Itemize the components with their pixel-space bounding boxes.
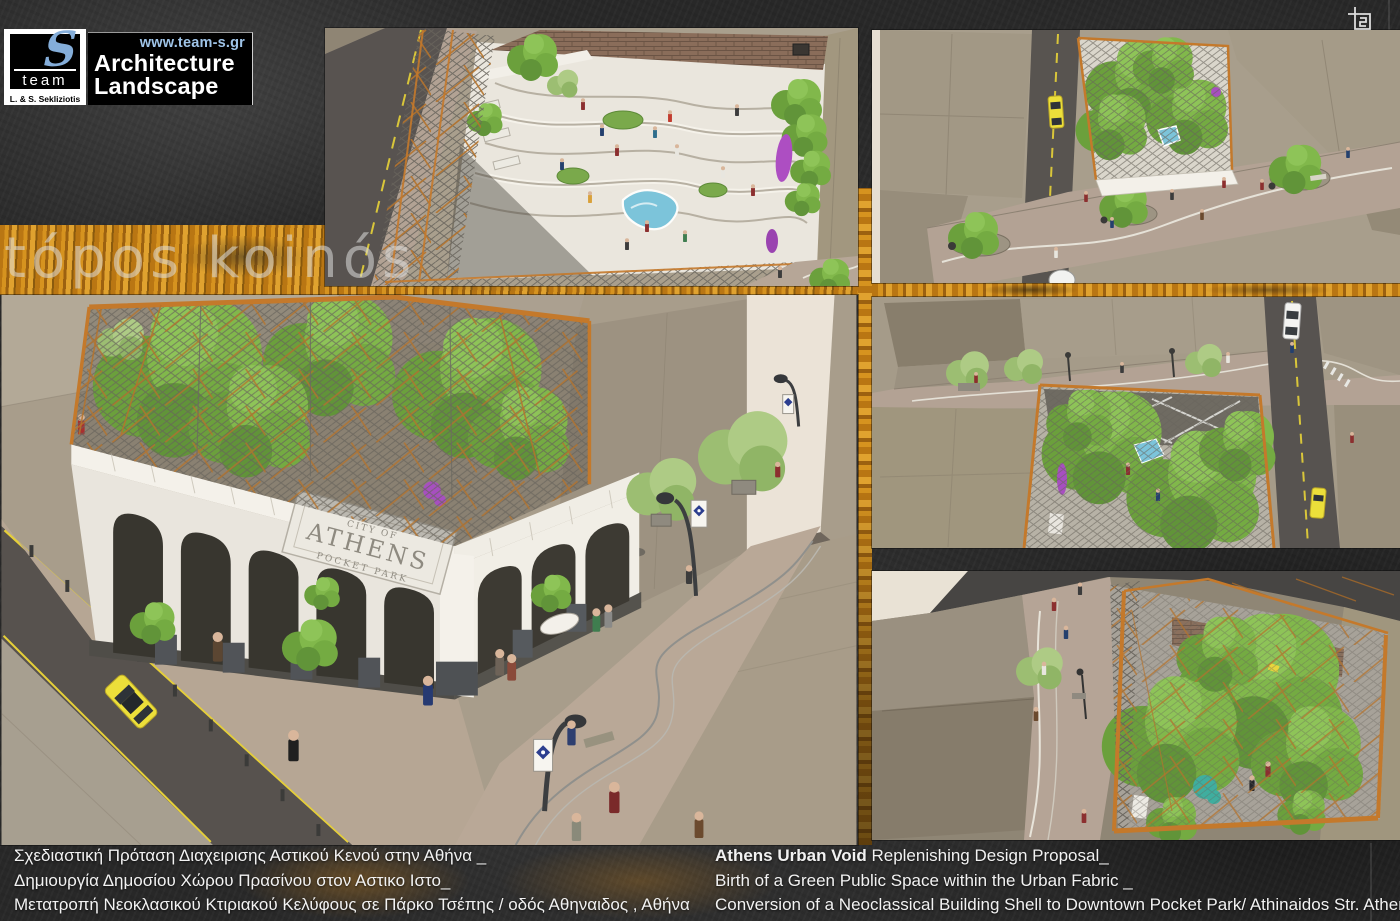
render-aerial-corner-panel bbox=[872, 297, 1400, 548]
caption-greek-line2: Δημιουργία Δημοσίου Χώρου Πρασίνου στον … bbox=[14, 869, 690, 894]
background-seam bbox=[1388, 0, 1390, 30]
logo-brand: team bbox=[14, 69, 76, 89]
render-birdseye-box-panel bbox=[872, 571, 1400, 840]
logo-discipline-2: Landscape bbox=[88, 75, 252, 98]
logo-mark-black-box: S team bbox=[10, 34, 80, 89]
mesh-box bbox=[1024, 385, 1276, 548]
logo-mark: S team L. & S. Sekliziotis bbox=[4, 29, 86, 105]
logo-subtitle: L. & S. Sekliziotis bbox=[4, 94, 86, 104]
white-car bbox=[1283, 302, 1301, 339]
caption-greek: Σχεδιαστική Πρόταση Διαχειρισης Αστικού … bbox=[14, 844, 690, 918]
yellow-taxi bbox=[1310, 487, 1327, 518]
caption-english-line1: Athens Urban Void Replenishing Design Pr… bbox=[715, 844, 1400, 869]
caption-english: Athens Urban Void Replenishing Design Pr… bbox=[715, 844, 1400, 918]
logo-discipline-1: Architecture bbox=[88, 52, 252, 75]
caption-english-line3: Conversion of a Neoclassical Building Sh… bbox=[715, 893, 1400, 918]
divider-orange-vertical bbox=[858, 188, 872, 845]
presentation-board: S team L. & S. Sekliziotis www.team-s.gr… bbox=[0, 0, 1400, 921]
yellow-taxi bbox=[1048, 96, 1064, 129]
watermark-text: tópos koinós bbox=[4, 226, 416, 291]
divider-orange-horizontal-right bbox=[872, 283, 1400, 297]
logo-text-box: www.team-s.gr Architecture Landscape bbox=[88, 32, 253, 105]
logo-s-icon: S bbox=[43, 24, 78, 74]
caption-greek-line3: Μετατροπή Νεοκλασικού Κτιριακού Κελύφους… bbox=[14, 893, 690, 918]
caption-english-line2: Birth of a Green Public Space within the… bbox=[715, 869, 1400, 894]
caption-title: Athens Urban Void bbox=[715, 846, 867, 865]
caption-greek-line1: Σχεδιαστική Πρόταση Διαχειρισης Αστικού … bbox=[14, 844, 690, 869]
mesh-box bbox=[1076, 37, 1238, 196]
team-s-logo: S team L. & S. Sekliziotis www.team-s.gr… bbox=[4, 29, 253, 105]
render-aerial-street-panel bbox=[872, 30, 1400, 283]
render-main-perspective-panel: CITY OF ATHENS POCKET PARK bbox=[0, 295, 858, 845]
crop-frame-icon bbox=[1346, 5, 1372, 31]
